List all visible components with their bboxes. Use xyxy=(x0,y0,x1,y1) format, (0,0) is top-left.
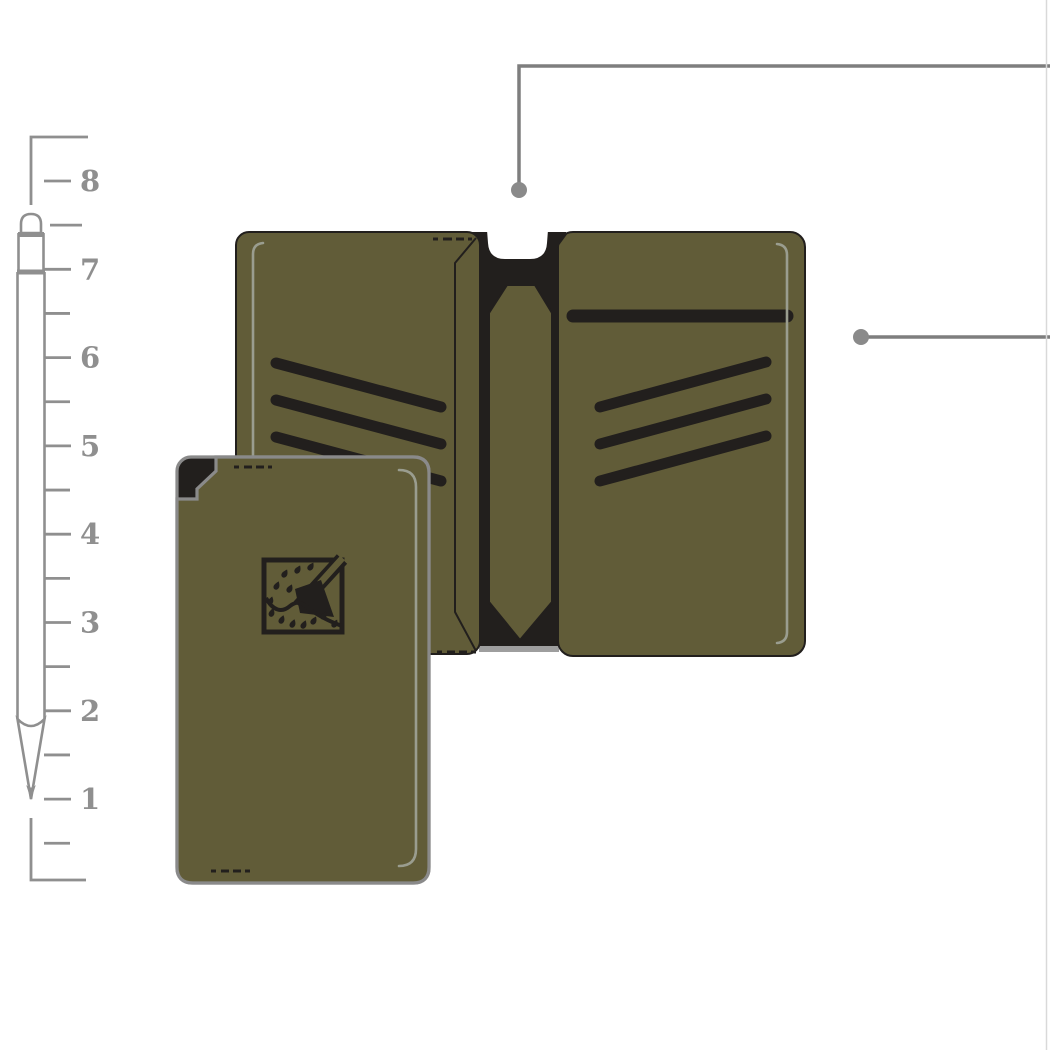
ruler-number: 6 xyxy=(80,341,100,375)
ruler-number: 3 xyxy=(80,606,100,640)
top-callout-line xyxy=(519,66,1050,190)
wallet-diagram: 87654321 xyxy=(0,0,1050,1050)
center-strap xyxy=(489,285,552,640)
pencil-ferrule xyxy=(19,233,44,272)
ruler-number: 5 xyxy=(80,429,100,463)
pencil-lead xyxy=(26,785,36,800)
ruler-number: 7 xyxy=(80,252,100,286)
wallet-front xyxy=(177,457,429,883)
ruler-number: 1 xyxy=(80,782,100,816)
ruler-ticks: 87654321 xyxy=(44,164,100,843)
ruler-number: 8 xyxy=(80,164,100,198)
pencil-tip xyxy=(18,719,45,799)
front-panel xyxy=(177,457,429,883)
ruler-bottom-bracket xyxy=(31,818,86,880)
thumb-notch xyxy=(487,230,548,259)
pencil-body xyxy=(18,272,45,719)
pencil xyxy=(17,214,45,800)
illustration-canvas: 87654321 xyxy=(0,0,1050,1050)
ruler-number: 2 xyxy=(80,694,100,728)
top-callout-dot xyxy=(511,182,527,198)
ruler-number: 4 xyxy=(80,517,100,551)
right-callout-dot xyxy=(853,329,869,345)
pencil-eraser xyxy=(21,214,41,233)
